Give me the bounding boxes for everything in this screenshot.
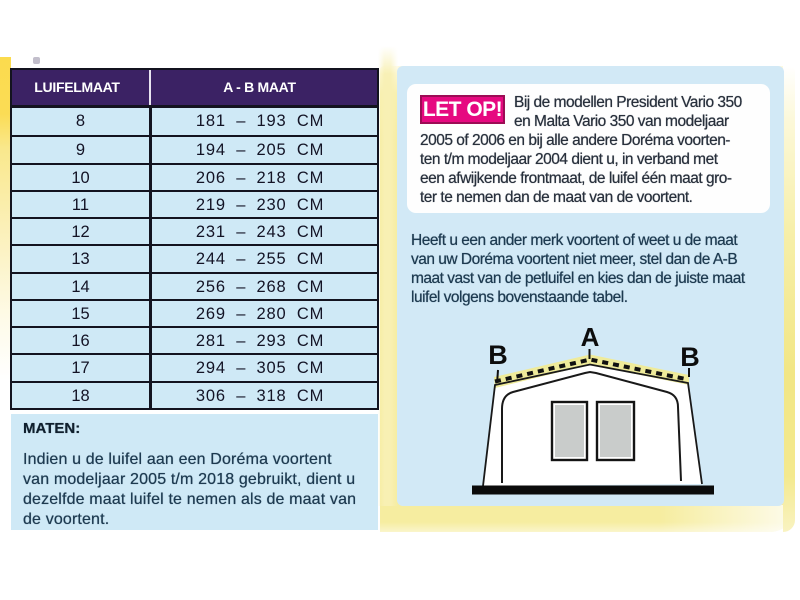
svg-text:B: B: [488, 340, 508, 370]
svg-text:A: A: [581, 322, 600, 352]
svg-text:B: B: [680, 342, 700, 372]
